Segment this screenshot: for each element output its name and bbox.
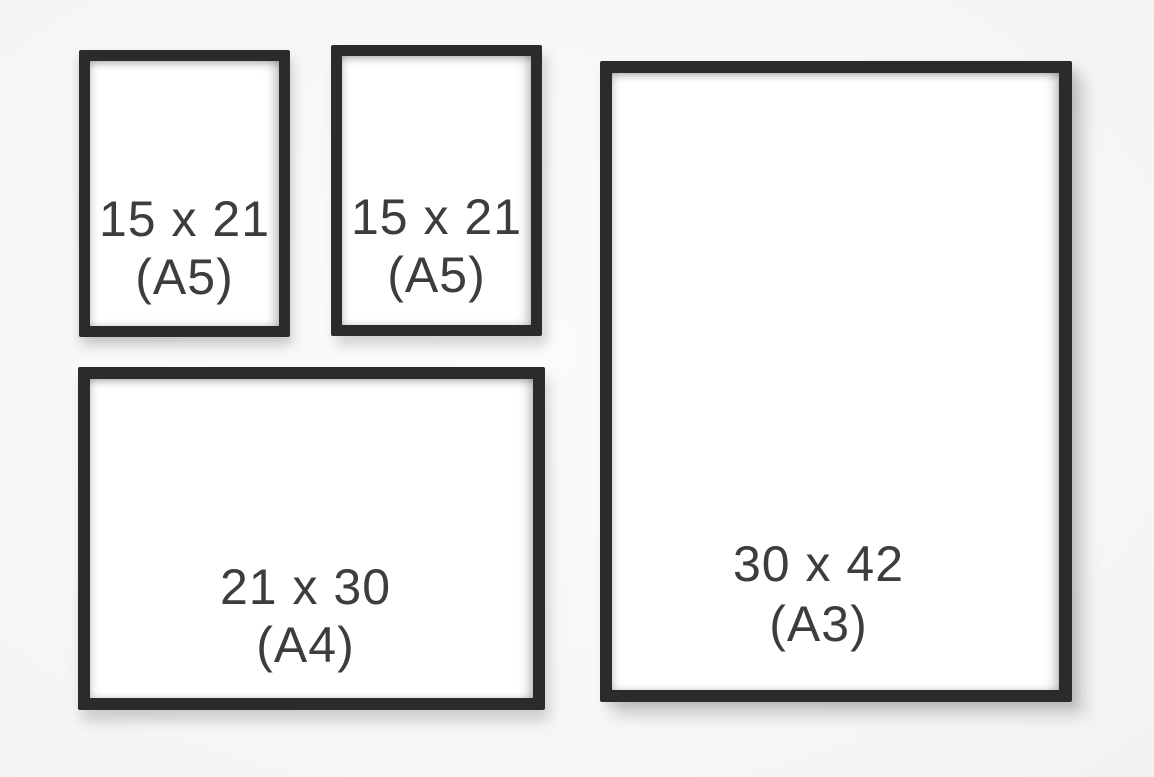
frame-paper: 21 x 30 (A4)	[90, 379, 533, 698]
format-text: (A5)	[90, 248, 279, 306]
format-text: (A3)	[595, 594, 1042, 654]
format-text: (A4)	[84, 616, 527, 674]
size-label: 15 x 21 (A5)	[90, 190, 279, 306]
size-label: 30 x 42 (A3)	[595, 534, 1042, 654]
frame-paper: 15 x 21 (A5)	[342, 56, 531, 325]
frame-paper: 15 x 21 (A5)	[90, 61, 279, 326]
frame-paper: 30 x 42 (A3)	[612, 73, 1059, 690]
size-text: 15 x 21	[342, 188, 531, 246]
size-text: 15 x 21	[90, 190, 279, 248]
size-label: 21 x 30 (A4)	[84, 558, 527, 674]
format-text: (A5)	[342, 246, 531, 304]
frame-21x30-a4-bottom: 21 x 30 (A4)	[78, 367, 545, 710]
size-text: 30 x 42	[595, 534, 1042, 594]
frame-30x42-a3-right: 30 x 42 (A3)	[600, 61, 1072, 702]
size-label: 15 x 21 (A5)	[342, 188, 531, 304]
frame-size-chart: 15 x 21 (A5) 15 x 21 (A5) 21 x 30 (A4) 3…	[0, 0, 1154, 777]
size-text: 21 x 30	[84, 558, 527, 616]
frame-15x21-a5-middle: 15 x 21 (A5)	[331, 45, 542, 336]
frame-15x21-a5-left: 15 x 21 (A5)	[79, 50, 290, 337]
